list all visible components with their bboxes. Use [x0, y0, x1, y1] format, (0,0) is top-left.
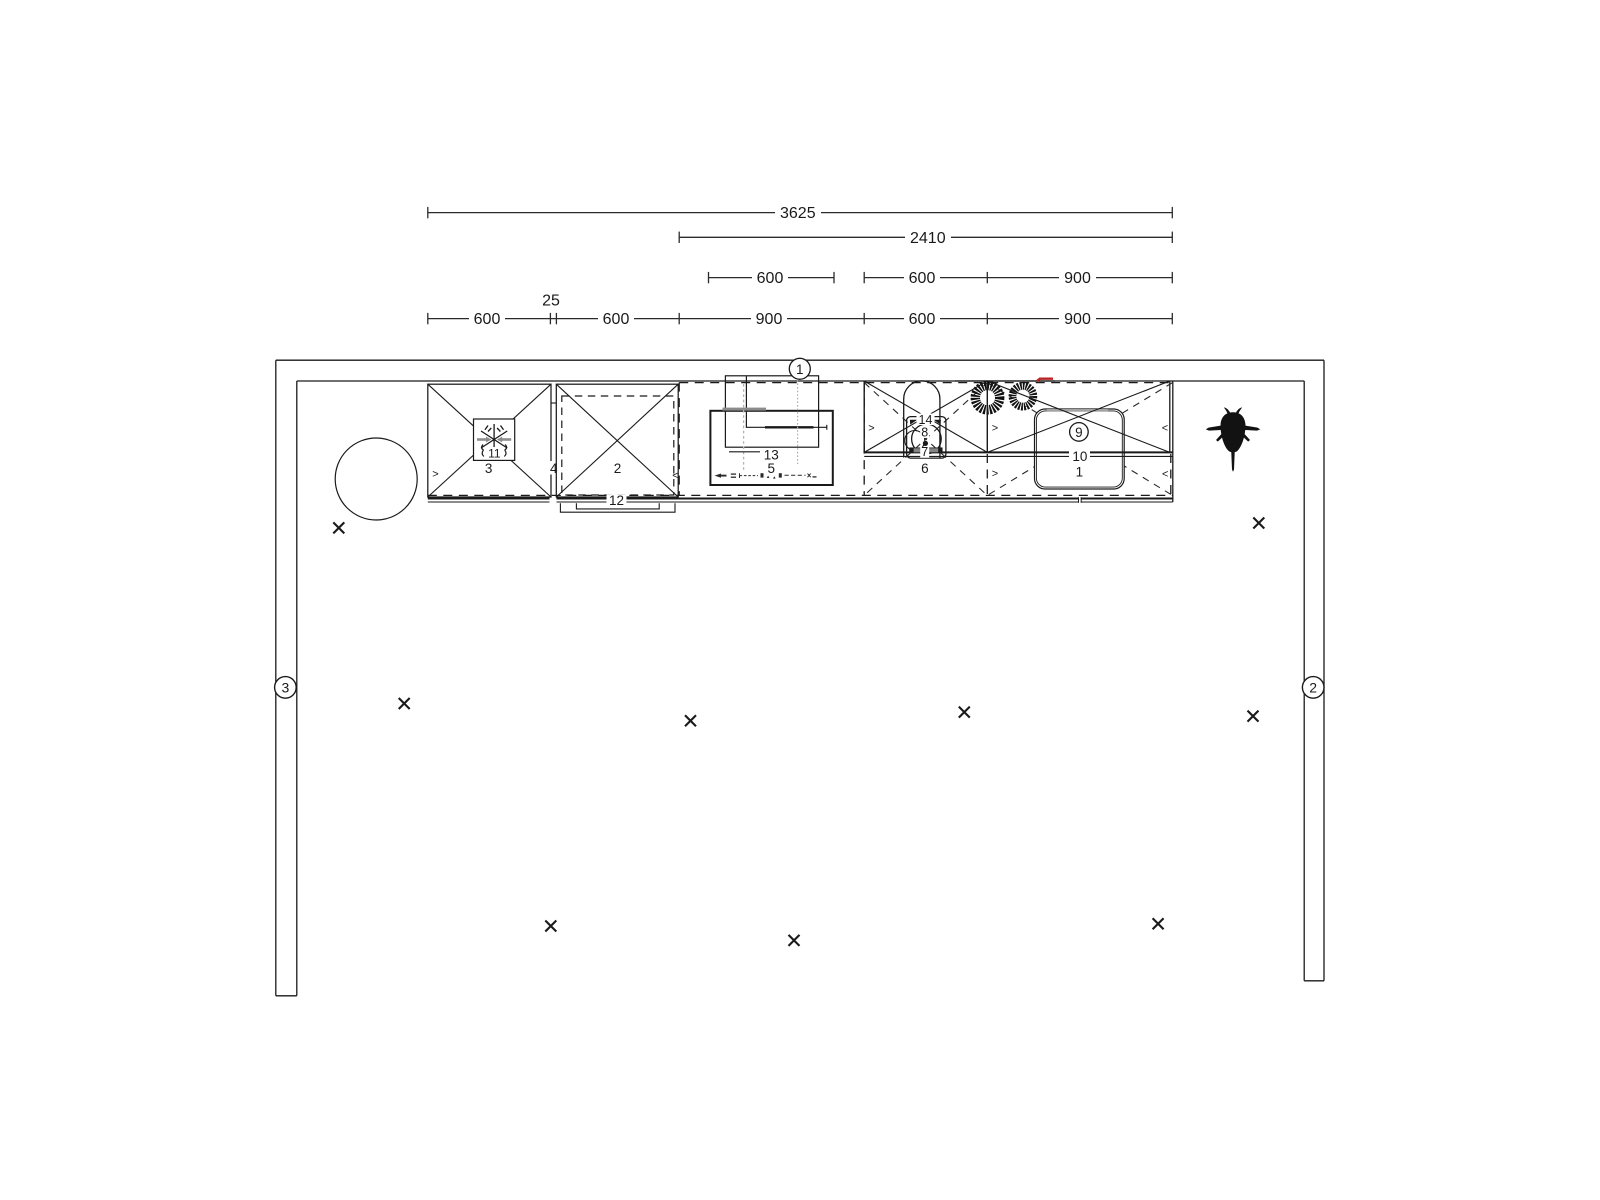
svg-text:12: 12 [609, 493, 624, 508]
svg-text:<: < [1162, 422, 1168, 434]
svg-text:11: 11 [488, 446, 501, 460]
svg-text:2: 2 [1309, 680, 1317, 696]
svg-text:900: 900 [1064, 311, 1091, 328]
svg-text:9: 9 [1075, 425, 1083, 440]
svg-text:1: 1 [1076, 465, 1084, 480]
svg-text:5: 5 [768, 461, 776, 476]
svg-text:8: 8 [921, 425, 928, 439]
svg-text:600: 600 [757, 270, 784, 287]
svg-text:3: 3 [485, 461, 493, 476]
svg-text:<: < [1162, 469, 1168, 481]
svg-text:<: < [672, 470, 678, 482]
svg-text:>: > [992, 468, 998, 480]
svg-text:600: 600 [603, 311, 630, 328]
svg-text:>: > [992, 423, 998, 435]
svg-text:1: 1 [796, 362, 804, 377]
svg-text:6: 6 [921, 461, 929, 476]
svg-text:600: 600 [909, 311, 936, 328]
svg-text:>: > [868, 423, 874, 435]
svg-text:600: 600 [909, 270, 936, 287]
svg-text:>: > [432, 469, 438, 481]
svg-text:900: 900 [756, 311, 783, 328]
svg-text:2410: 2410 [910, 230, 946, 247]
svg-text:7: 7 [921, 445, 928, 459]
svg-text:2: 2 [614, 461, 622, 476]
svg-text:10: 10 [1072, 449, 1087, 464]
svg-text:3625: 3625 [780, 205, 816, 222]
svg-text:25: 25 [542, 292, 560, 309]
svg-text:600: 600 [474, 311, 501, 328]
svg-text:900: 900 [1064, 270, 1091, 287]
svg-text:3: 3 [282, 680, 290, 696]
